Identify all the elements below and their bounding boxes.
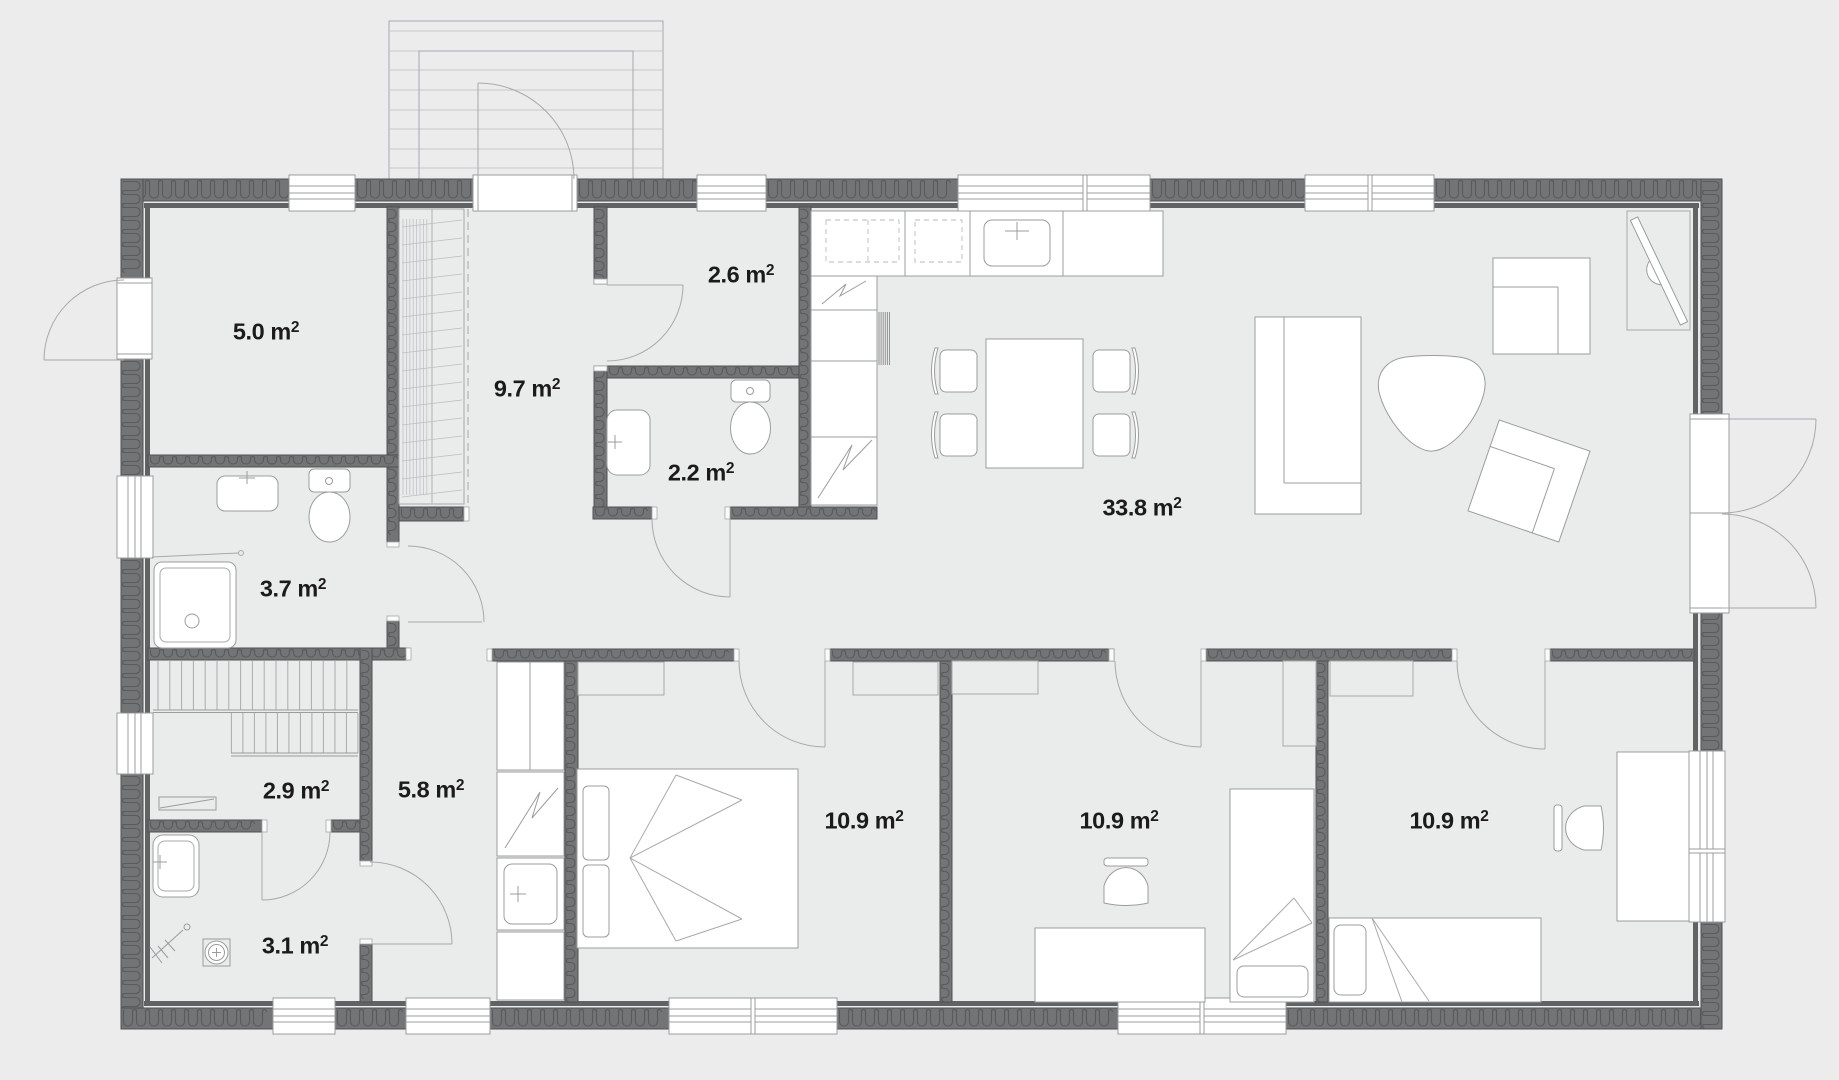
svg-text:10.9 m2: 10.9 m2 — [825, 808, 904, 834]
svg-text:2.9 m2: 2.9 m2 — [263, 778, 329, 804]
svg-text:3.7 m2: 3.7 m2 — [260, 576, 326, 602]
svg-text:33.8 m2: 33.8 m2 — [1103, 495, 1182, 521]
svg-text:3.1 m2: 3.1 m2 — [262, 933, 328, 959]
svg-text:5.0 m2: 5.0 m2 — [233, 319, 299, 345]
svg-text:9.7 m2: 9.7 m2 — [494, 376, 560, 402]
svg-text:2.2 m2: 2.2 m2 — [668, 460, 734, 486]
svg-text:5.8 m2: 5.8 m2 — [398, 777, 464, 803]
svg-text:10.9 m2: 10.9 m2 — [1080, 808, 1159, 834]
svg-text:2.6 m2: 2.6 m2 — [708, 262, 774, 288]
svg-text:10.9 m2: 10.9 m2 — [1410, 808, 1489, 834]
